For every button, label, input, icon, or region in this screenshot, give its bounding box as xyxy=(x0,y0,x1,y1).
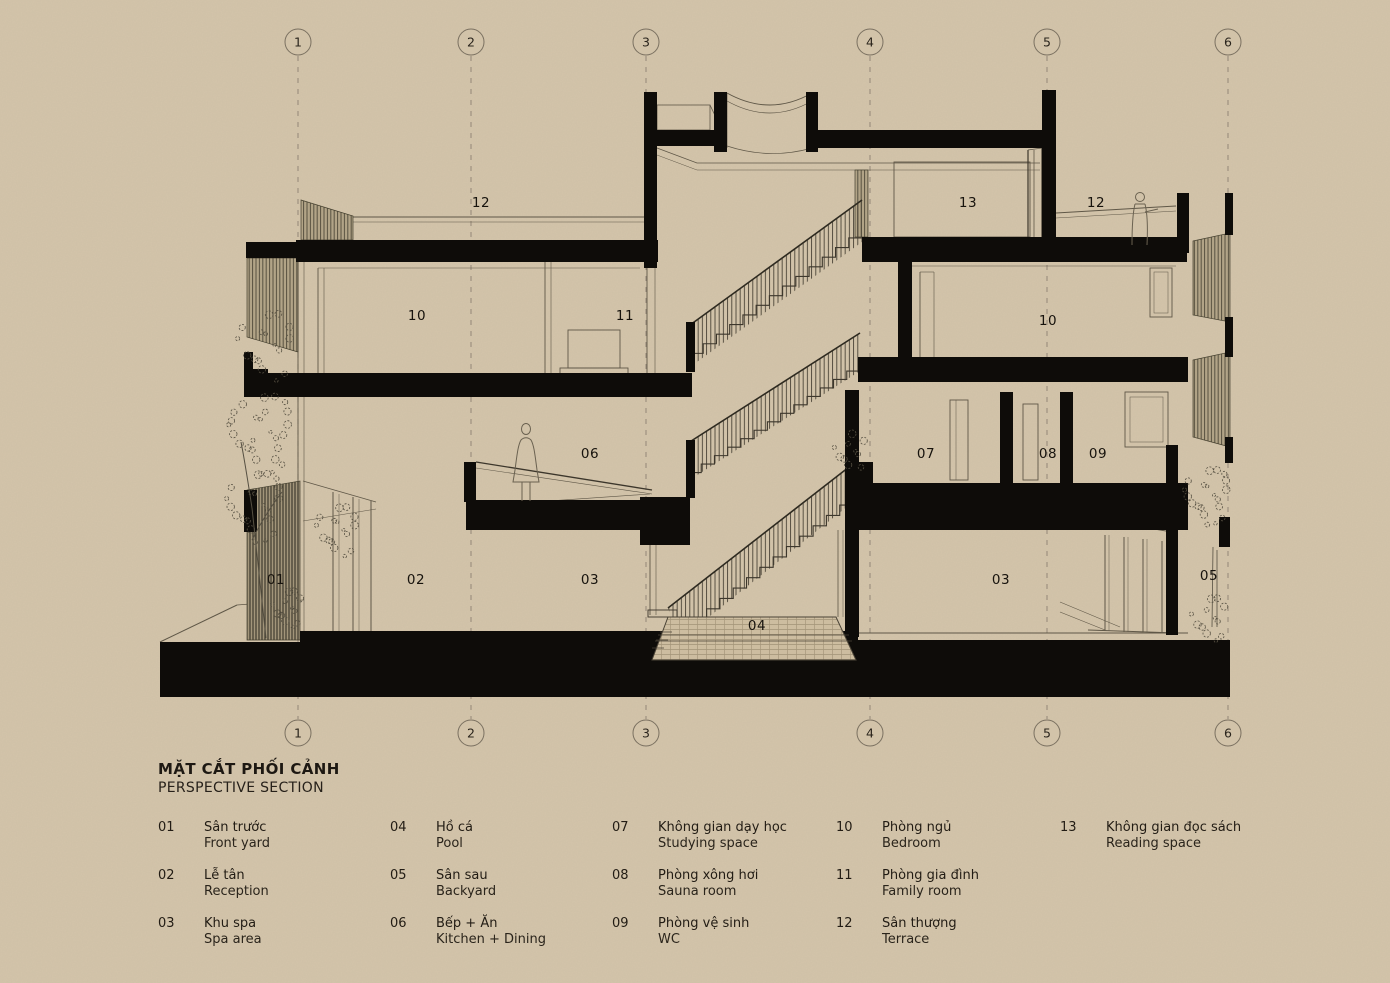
room-label-11: 11 xyxy=(616,308,634,324)
facade-louver-right-lower xyxy=(1193,352,1230,447)
room-label-03: 03 xyxy=(992,572,1010,588)
grid-number: 6 xyxy=(1224,35,1232,50)
room-label-08: 08 xyxy=(1039,446,1057,462)
partition-08-09 xyxy=(1060,392,1073,483)
grid-number: 4 xyxy=(866,35,874,50)
grid-number: 2 xyxy=(467,726,475,741)
tower-wall-right xyxy=(1042,90,1056,245)
room-label-12: 12 xyxy=(1087,195,1105,211)
facade-louver-left xyxy=(247,258,298,352)
bedroom-floor-slab-left xyxy=(244,373,692,397)
backyard-pier xyxy=(1219,517,1230,547)
grid-number: 3 xyxy=(642,726,650,741)
room-label-10: 10 xyxy=(1039,313,1057,329)
room-label-07: 07 xyxy=(917,446,935,462)
page-title: MẶT CẮT PHỐI CẢNH xyxy=(158,760,340,778)
upper-floor-slab-right xyxy=(845,483,1188,530)
room-label-13: 13 xyxy=(959,195,977,211)
grid-number: 5 xyxy=(1043,726,1051,741)
right-edge-bar-2 xyxy=(1225,317,1233,357)
grid-number: 1 xyxy=(294,726,302,741)
grid-number: 5 xyxy=(1043,35,1051,50)
room-label-09: 09 xyxy=(1089,446,1107,462)
terrace-end-wall xyxy=(1177,193,1189,253)
room-label-03: 03 xyxy=(581,572,599,588)
grid-number: 2 xyxy=(467,35,475,50)
roof-slab-left xyxy=(296,240,658,262)
grid-number: 4 xyxy=(866,726,874,741)
room-label-04: 04 xyxy=(748,618,766,634)
mezzanine-rail-post xyxy=(464,462,476,502)
room-label-12: 12 xyxy=(472,195,490,211)
stair-newel-middle xyxy=(686,440,695,498)
page-subtitle: PERSPECTIVE SECTION xyxy=(158,780,340,796)
grid-number: 3 xyxy=(642,35,650,50)
tower-roof-slab xyxy=(806,130,1044,148)
roof-cantilever-left xyxy=(246,242,298,258)
room-label-06: 06 xyxy=(581,446,599,462)
planter-edge-vert xyxy=(244,352,253,378)
perspective-section-sheet: 112233445566 xyxy=(0,0,1390,983)
title-block: MẶT CẮT PHỐI CẢNH PERSPECTIVE SECTION xyxy=(158,760,340,796)
bedroom-floor-slab-right xyxy=(858,357,1188,382)
section-drawing: 112233445566 xyxy=(0,0,1390,983)
stair-newel-upper xyxy=(686,322,695,372)
right-wall-mid xyxy=(1166,445,1178,635)
room-label-05: 05 xyxy=(1200,568,1218,584)
partition-07-08 xyxy=(1000,392,1013,483)
vault-parapet-left xyxy=(714,92,727,152)
facade-louver-right-upper xyxy=(1193,233,1230,322)
room-label-10: 10 xyxy=(408,308,426,324)
right-edge-bar-1 xyxy=(1225,193,1233,235)
grid-number: 1 xyxy=(294,35,302,50)
room-label-01: 01 xyxy=(267,572,285,588)
roof-slab-right xyxy=(862,237,1187,262)
right-edge-bar-3 xyxy=(1225,437,1233,463)
bedroom-right-wall xyxy=(898,260,912,360)
grid-number: 6 xyxy=(1224,726,1232,741)
room-label-02: 02 xyxy=(407,572,425,588)
